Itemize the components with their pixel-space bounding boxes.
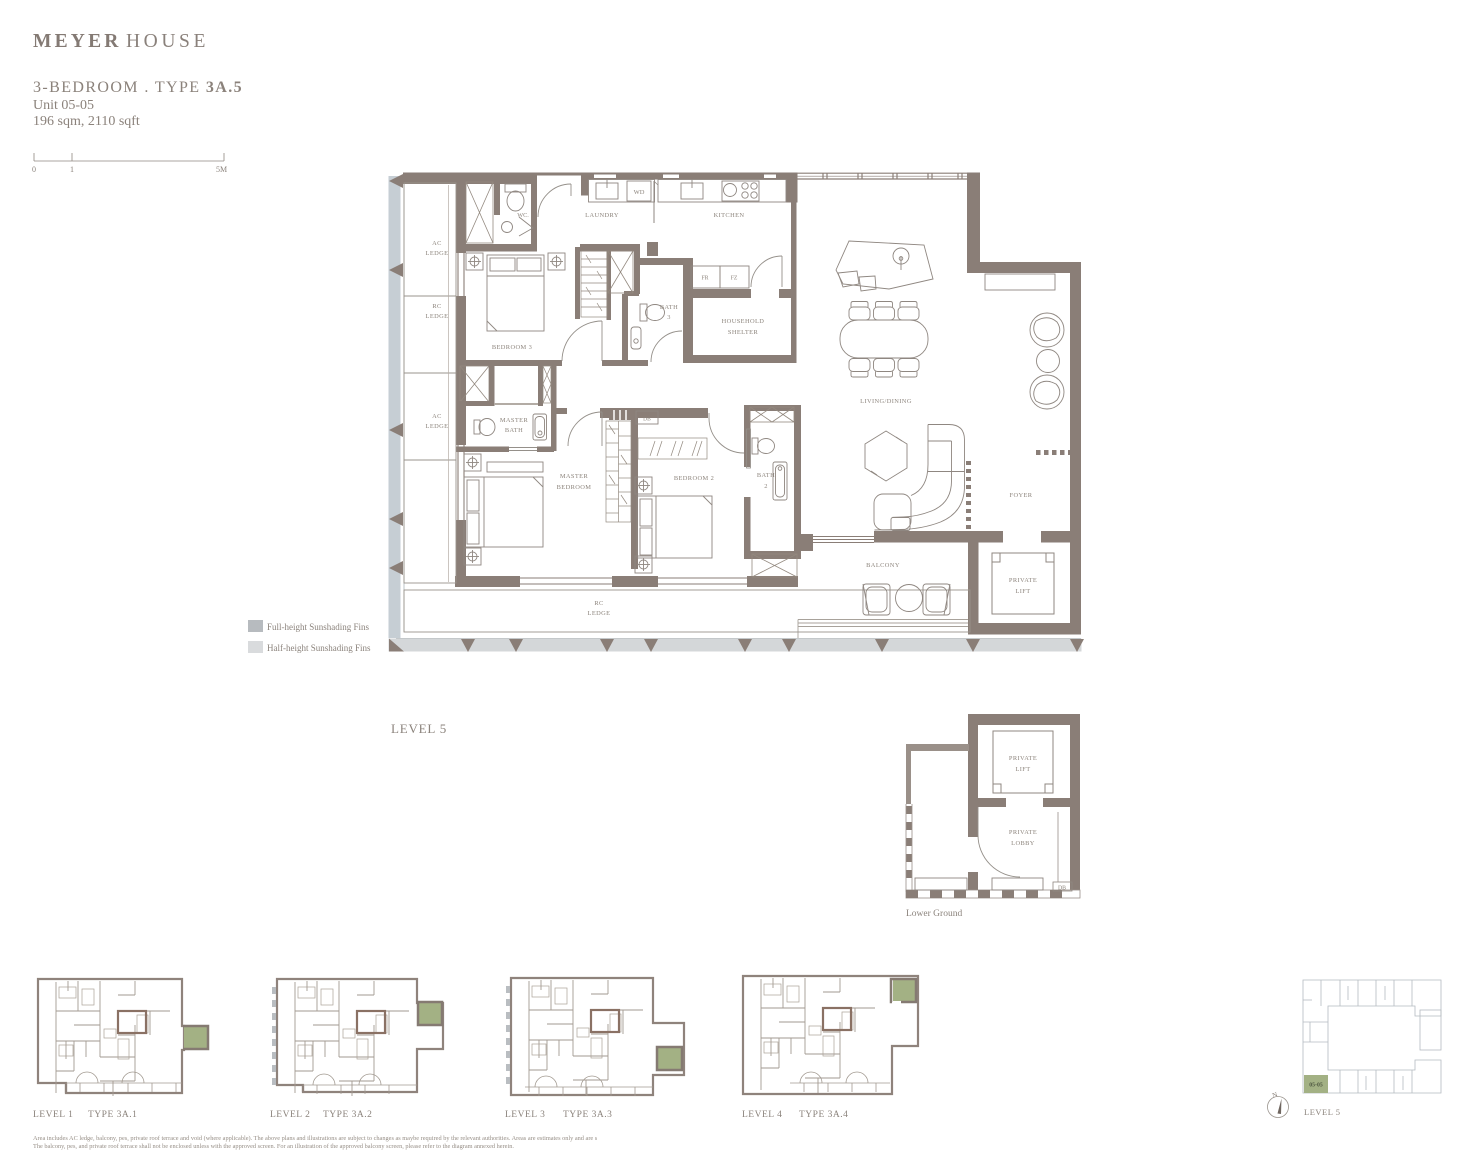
svg-text:BEDROOM 2: BEDROOM 2 <box>674 475 714 482</box>
svg-text:DB: DB <box>643 417 651 423</box>
svg-text:Full-height Sunshading Fins: Full-height Sunshading Fins <box>267 622 370 632</box>
svg-text:LEVEL 5: LEVEL 5 <box>1304 1107 1340 1117</box>
svg-text:TYPE 3A.4: TYPE 3A.4 <box>799 1110 848 1120</box>
svg-text:LOBBY: LOBBY <box>1011 840 1035 847</box>
svg-text:DB: DB <box>1058 886 1066 892</box>
svg-text:FR: FR <box>701 276 708 282</box>
svg-text:0: 0 <box>32 165 36 174</box>
svg-text:FOYER: FOYER <box>1010 492 1033 499</box>
svg-text:LEVEL 2: LEVEL 2 <box>270 1110 310 1120</box>
svg-text:PRIVATE: PRIVATE <box>1009 755 1037 762</box>
svg-text:The balcony, pes, and private: The balcony, pes, and private roof terra… <box>33 1143 514 1150</box>
svg-text:BATH: BATH <box>757 472 775 479</box>
svg-text:LEDGE: LEDGE <box>426 250 449 257</box>
svg-text:MEYER: MEYER <box>33 31 122 52</box>
svg-text:LAUNDRY: LAUNDRY <box>585 212 619 219</box>
svg-text:05-05: 05-05 <box>1309 1083 1323 1089</box>
svg-text:3-BEDROOM . TYPE 3A.5: 3-BEDROOM . TYPE 3A.5 <box>33 79 243 96</box>
svg-text:FZ: FZ <box>731 276 738 282</box>
svg-text:3: 3 <box>667 314 671 321</box>
svg-text:AC: AC <box>432 413 442 420</box>
svg-text:LIVING/DINING: LIVING/DINING <box>860 398 912 405</box>
svg-text:KITCHEN: KITCHEN <box>714 212 745 219</box>
svg-text:196 sqm, 2110 sqft: 196 sqm, 2110 sqft <box>33 114 140 129</box>
svg-text:TYPE 3A.2: TYPE 3A.2 <box>323 1110 372 1120</box>
svg-text:LIFT: LIFT <box>1015 766 1030 773</box>
svg-text:LEVEL 5: LEVEL 5 <box>391 721 447 736</box>
svg-text:BATH: BATH <box>660 304 678 311</box>
svg-text:WC.: WC. <box>517 212 529 219</box>
svg-text:BEDROOM 3: BEDROOM 3 <box>492 344 532 351</box>
svg-text:Half-height Sunshading Fins: Half-height Sunshading Fins <box>267 643 371 653</box>
svg-text:PRIVATE: PRIVATE <box>1009 829 1037 836</box>
svg-text:MASTER: MASTER <box>560 473 589 480</box>
svg-text:AC: AC <box>432 240 442 247</box>
svg-text:LEDGE: LEDGE <box>588 610 611 617</box>
svg-text:LEVEL 4: LEVEL 4 <box>742 1110 782 1120</box>
svg-text:RC: RC <box>432 303 441 310</box>
svg-text:2: 2 <box>764 483 768 490</box>
svg-text:WD: WD <box>634 189 645 196</box>
svg-text:LEVEL 3: LEVEL 3 <box>505 1110 545 1120</box>
svg-text:LIFT: LIFT <box>1015 588 1030 595</box>
svg-text:1: 1 <box>70 165 74 174</box>
svg-text:HOUSEHOLD: HOUSEHOLD <box>722 318 765 325</box>
svg-text:MASTER: MASTER <box>500 417 529 424</box>
svg-text:TYPE 3A.3: TYPE 3A.3 <box>563 1110 612 1120</box>
svg-text:BALCONY: BALCONY <box>866 562 900 569</box>
svg-text:Unit 05-05: Unit 05-05 <box>33 98 94 113</box>
svg-text:PRIVATE: PRIVATE <box>1009 577 1037 584</box>
svg-text:Lower Ground: Lower Ground <box>906 909 962 919</box>
svg-text:LEDGE: LEDGE <box>426 313 449 320</box>
svg-text:LEVEL 1: LEVEL 1 <box>33 1110 73 1120</box>
svg-text:LEDGE: LEDGE <box>426 423 449 430</box>
svg-text:BATH: BATH <box>505 427 523 434</box>
svg-text:RC: RC <box>594 600 603 607</box>
svg-text:5M: 5M <box>216 165 227 174</box>
svg-text:HOUSE: HOUSE <box>126 31 209 52</box>
svg-text:SHELTER: SHELTER <box>728 329 759 336</box>
svg-text:BEDROOM: BEDROOM <box>557 484 592 491</box>
svg-text:Area includes AC ledge, balcon: Area includes AC ledge, balcony, pes, pr… <box>33 1135 598 1142</box>
svg-text:TYPE 3A.1: TYPE 3A.1 <box>88 1110 137 1120</box>
